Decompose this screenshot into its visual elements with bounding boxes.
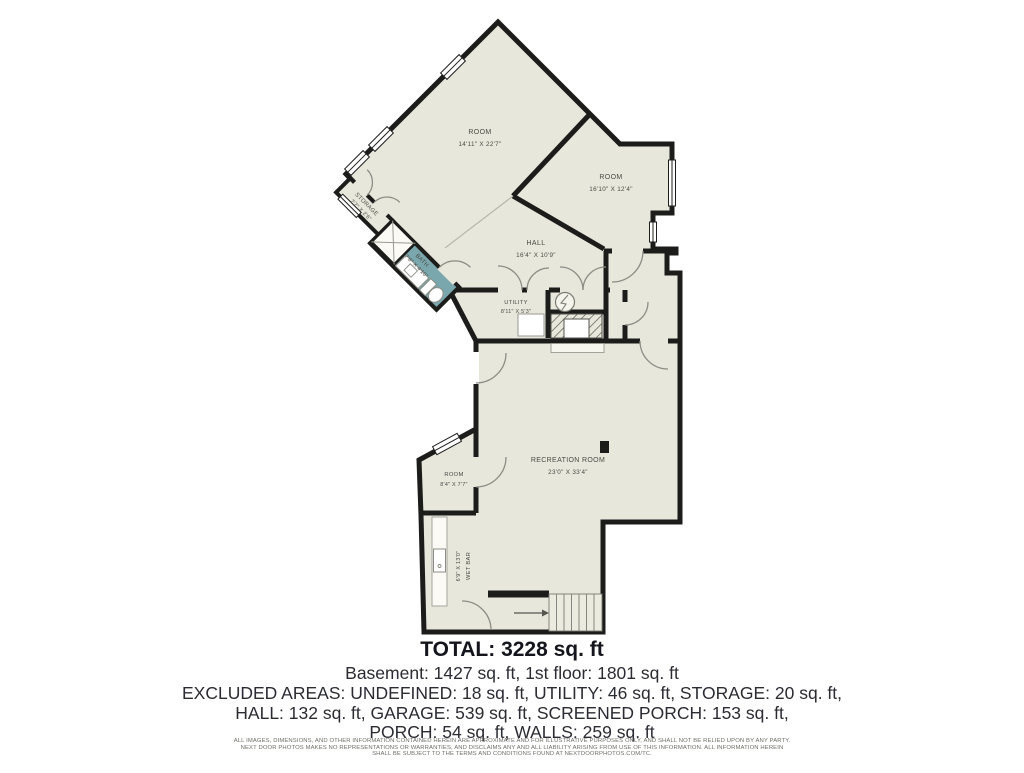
top-room-dims: 14'11" X 22'7" <box>458 141 501 148</box>
water-heater-icon <box>556 293 575 312</box>
small-room-dims: 8'4" X 7'7" <box>440 482 467 488</box>
disclaimer-line1: ALL IMAGES, DIMENSIONS, AND OTHER INFORM… <box>0 738 1024 745</box>
excluded-areas-line1: EXCLUDED AREAS: UNDEFINED: 18 sq. ft, UT… <box>0 683 1024 704</box>
utility-dims: 8'11" X 5'3" <box>501 309 531 315</box>
wet-bar-label: WET BAR <box>466 552 472 580</box>
floor-outline <box>346 22 680 632</box>
wet-bar-counter <box>432 517 447 606</box>
disclaimer-line2: NEXT DOOR PHOTOS MAKES NO REPRESENTATION… <box>0 745 1024 752</box>
total-area-text: TOTAL: 3228 sq. ft <box>0 638 1024 662</box>
hall-dims: 16'4" X 10'9" <box>516 252 556 259</box>
disclaimer-line3: SHALL BE SUBJECT TO THE TERMS AND CONDIT… <box>0 751 1024 758</box>
recreation-room-dims: 23'0" X 33'4" <box>548 469 588 476</box>
recreation-room-label: RECREATION ROOM <box>531 457 605 464</box>
excluded-areas-line2: HALL: 132 sq. ft, GARAGE: 539 sq. ft, SC… <box>0 703 1024 724</box>
top-room-label: ROOM <box>468 129 491 136</box>
right-room-dims: 16'10" X 12'4" <box>589 186 633 193</box>
small-room-label: ROOM <box>444 472 463 478</box>
wet-bar-sink-icon <box>434 549 446 572</box>
hall-label: HALL <box>527 240 546 247</box>
support-column <box>600 441 609 453</box>
floor-areas-text: Basement: 1427 sq. ft, 1st floor: 1801 s… <box>0 663 1024 684</box>
utility-label: UTILITY <box>504 300 528 306</box>
right-room-label: ROOM <box>599 174 622 181</box>
disclaimer-text: ALL IMAGES, DIMENSIONS, AND OTHER INFORM… <box>0 738 1024 758</box>
stair-landing <box>551 344 604 353</box>
wet-bar-dims: 6'9" X 13'0" <box>456 551 462 582</box>
